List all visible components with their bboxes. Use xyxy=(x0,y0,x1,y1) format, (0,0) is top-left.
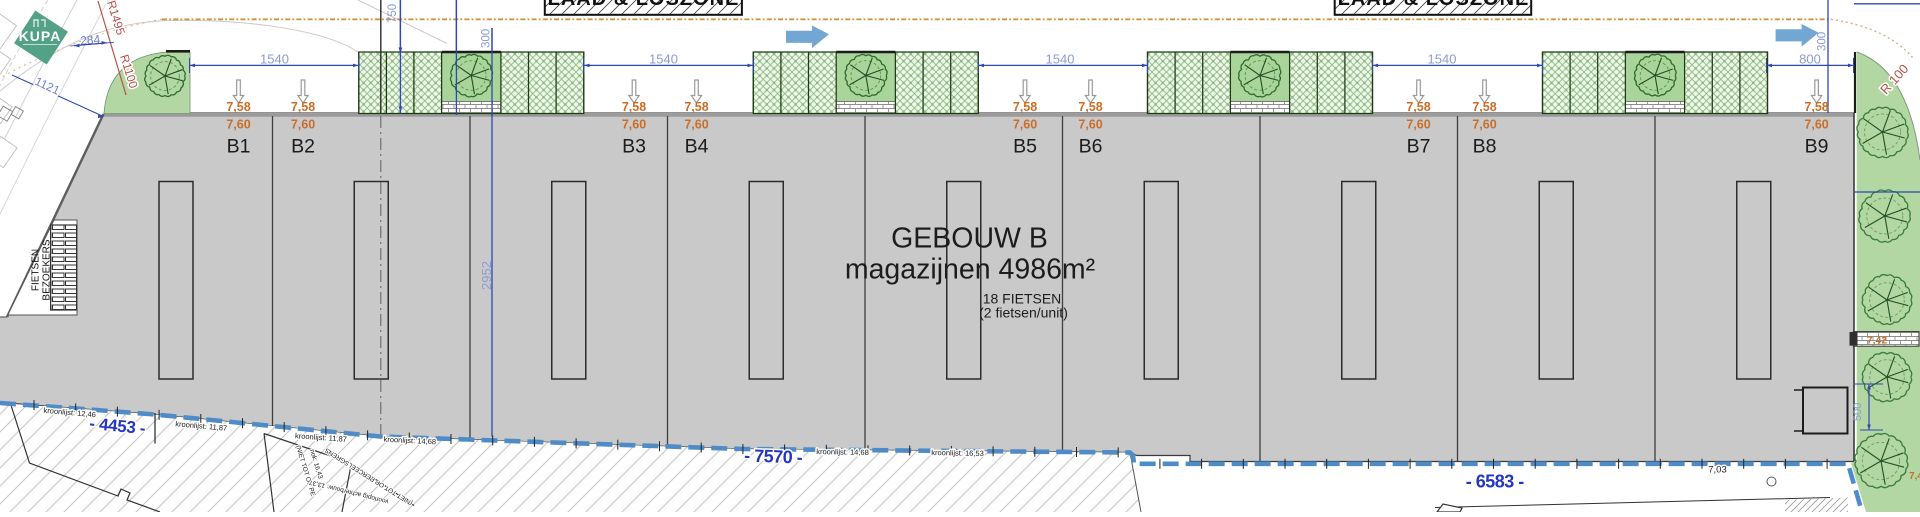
svg-text:1540: 1540 xyxy=(260,52,289,67)
svg-text:7,42: 7,42 xyxy=(1867,335,1888,347)
svg-text:B9: B9 xyxy=(1805,136,1829,158)
svg-text:FIETSEN: FIETSEN xyxy=(31,249,42,291)
svg-text:7,60: 7,60 xyxy=(684,118,708,132)
svg-text:1540: 1540 xyxy=(649,52,678,67)
svg-text:2952: 2952 xyxy=(479,261,494,290)
svg-text:B2: B2 xyxy=(291,136,315,158)
svg-text:7,60: 7,60 xyxy=(622,118,646,132)
svg-text:7,58: 7,58 xyxy=(1472,100,1496,114)
svg-text:800: 800 xyxy=(1799,52,1821,67)
svg-text:magazijnen 4986m²: magazijnen 4986m² xyxy=(845,254,1095,286)
svg-text:kroonlijst: 14,68: kroonlijst: 14,68 xyxy=(816,447,869,457)
svg-text:LAAD & LOSZONE: LAAD & LOSZONE xyxy=(1338,0,1530,10)
svg-text:- 6583 -: - 6583 - xyxy=(1466,472,1525,492)
svg-text:B1: B1 xyxy=(227,136,251,158)
svg-text:- 7570 -: - 7570 - xyxy=(744,445,803,467)
svg-text:B3: B3 xyxy=(622,136,646,158)
svg-text:750: 750 xyxy=(387,4,399,23)
svg-text:7,60: 7,60 xyxy=(1406,118,1430,132)
svg-text:BEZOEKERS: BEZOEKERS xyxy=(42,239,53,300)
svg-text:(2 fietsen/unit): (2 fietsen/unit) xyxy=(979,305,1068,321)
svg-text:7,60: 7,60 xyxy=(1804,118,1828,132)
svg-text:7,58: 7,58 xyxy=(1804,100,1828,114)
svg-text:7,60: 7,60 xyxy=(1013,118,1037,132)
svg-text:B4: B4 xyxy=(685,136,709,158)
svg-text:7,58: 7,58 xyxy=(1078,100,1102,114)
svg-text:7,58: 7,58 xyxy=(684,100,708,114)
svg-text:300: 300 xyxy=(1817,32,1829,51)
svg-text:B7: B7 xyxy=(1407,136,1431,158)
svg-text:300: 300 xyxy=(481,29,493,48)
svg-text:1540: 1540 xyxy=(1428,52,1457,67)
svg-text:7,60: 7,60 xyxy=(1472,118,1496,132)
svg-text:500: 500 xyxy=(1852,403,1864,421)
svg-text:7,58: 7,58 xyxy=(1013,100,1037,114)
svg-text:B5: B5 xyxy=(1013,136,1037,158)
svg-text:7,58: 7,58 xyxy=(622,100,646,114)
svg-text:B6: B6 xyxy=(1079,136,1103,158)
svg-text:7,60: 7,60 xyxy=(226,118,250,132)
svg-text:7,60: 7,60 xyxy=(1078,118,1102,132)
svg-text:GEBOUW B: GEBOUW B xyxy=(891,223,1048,255)
svg-text:LAAD & LOSZONE: LAAD & LOSZONE xyxy=(548,0,740,10)
svg-text:7,58: 7,58 xyxy=(1406,100,1430,114)
svg-text:B8: B8 xyxy=(1473,136,1497,158)
svg-text:7,4: 7,4 xyxy=(1909,471,1920,482)
svg-text:kroonlijst: 16,53: kroonlijst: 16,53 xyxy=(931,448,984,458)
svg-text:7,58: 7,58 xyxy=(226,100,250,114)
svg-text:7,03: 7,03 xyxy=(1708,465,1727,476)
svg-text:KUPA: KUPA xyxy=(19,28,62,44)
svg-text:7,60: 7,60 xyxy=(291,118,315,132)
svg-text:7,58: 7,58 xyxy=(291,100,315,114)
svg-text:1540: 1540 xyxy=(1046,52,1075,67)
